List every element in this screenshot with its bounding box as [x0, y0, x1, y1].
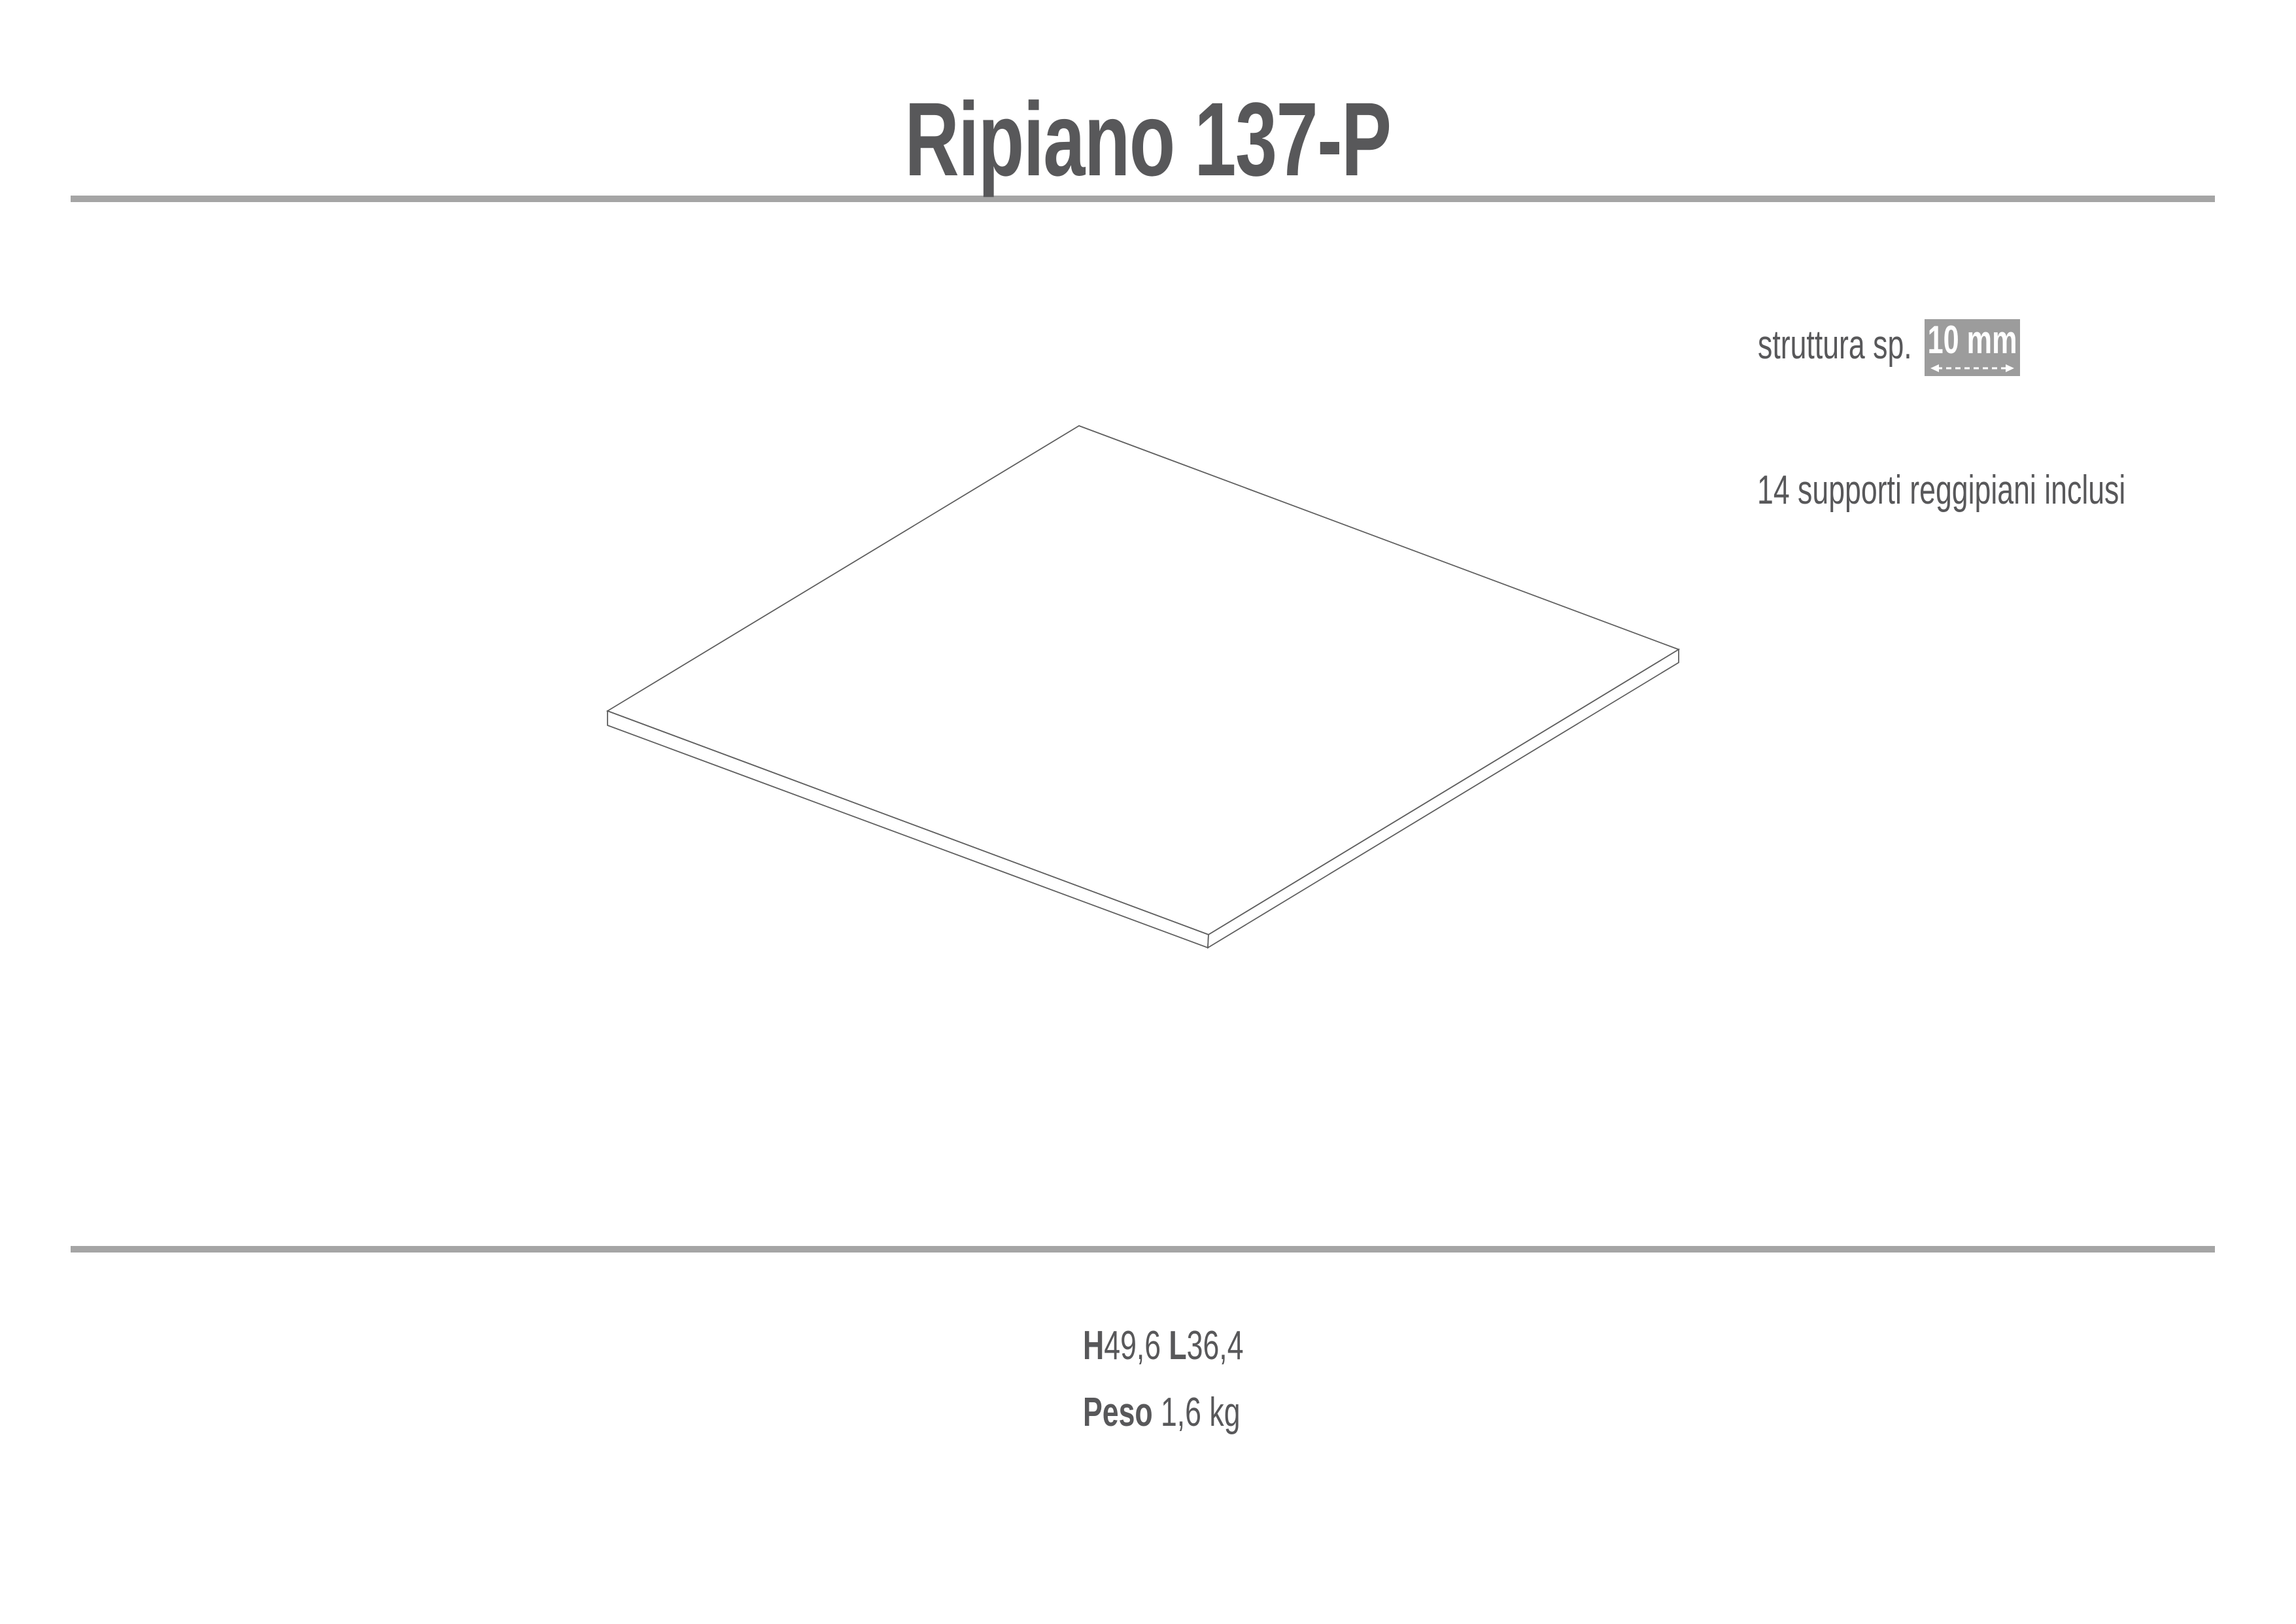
supports-note: 14 supporti reggipiani inclusi	[1757, 470, 2269, 511]
weight-line: Peso1,6 kg	[1083, 1392, 1306, 1433]
page-title: Ripiano 137-P	[905, 87, 1391, 192]
thickness-arrow-icon	[1930, 363, 2014, 373]
weight-label: Peso	[1083, 1390, 1153, 1435]
length-label: L	[1169, 1323, 1186, 1368]
thickness-value: 10 mm	[1928, 320, 2017, 360]
shelf-top-face	[608, 426, 1679, 935]
height-label: H	[1083, 1323, 1104, 1368]
height-value: 49,6	[1104, 1323, 1161, 1368]
thickness-badge: 10 mm	[1925, 319, 2020, 376]
footer-rule	[71, 1246, 2215, 1253]
dimensions-line: H49,6L36,4	[1083, 1326, 1306, 1366]
length-value: 36,4	[1187, 1323, 1244, 1368]
spec-sheet-page: Ripiano 137-P struttura sp. 10 mm 14 sup…	[0, 0, 2296, 1624]
page-title-row: Ripiano 137-P	[0, 87, 2296, 192]
weight-value: 1,6 kg	[1161, 1390, 1241, 1435]
dimensions-block: H49,6L36,4 Peso1,6 kg	[1083, 1326, 1306, 1433]
